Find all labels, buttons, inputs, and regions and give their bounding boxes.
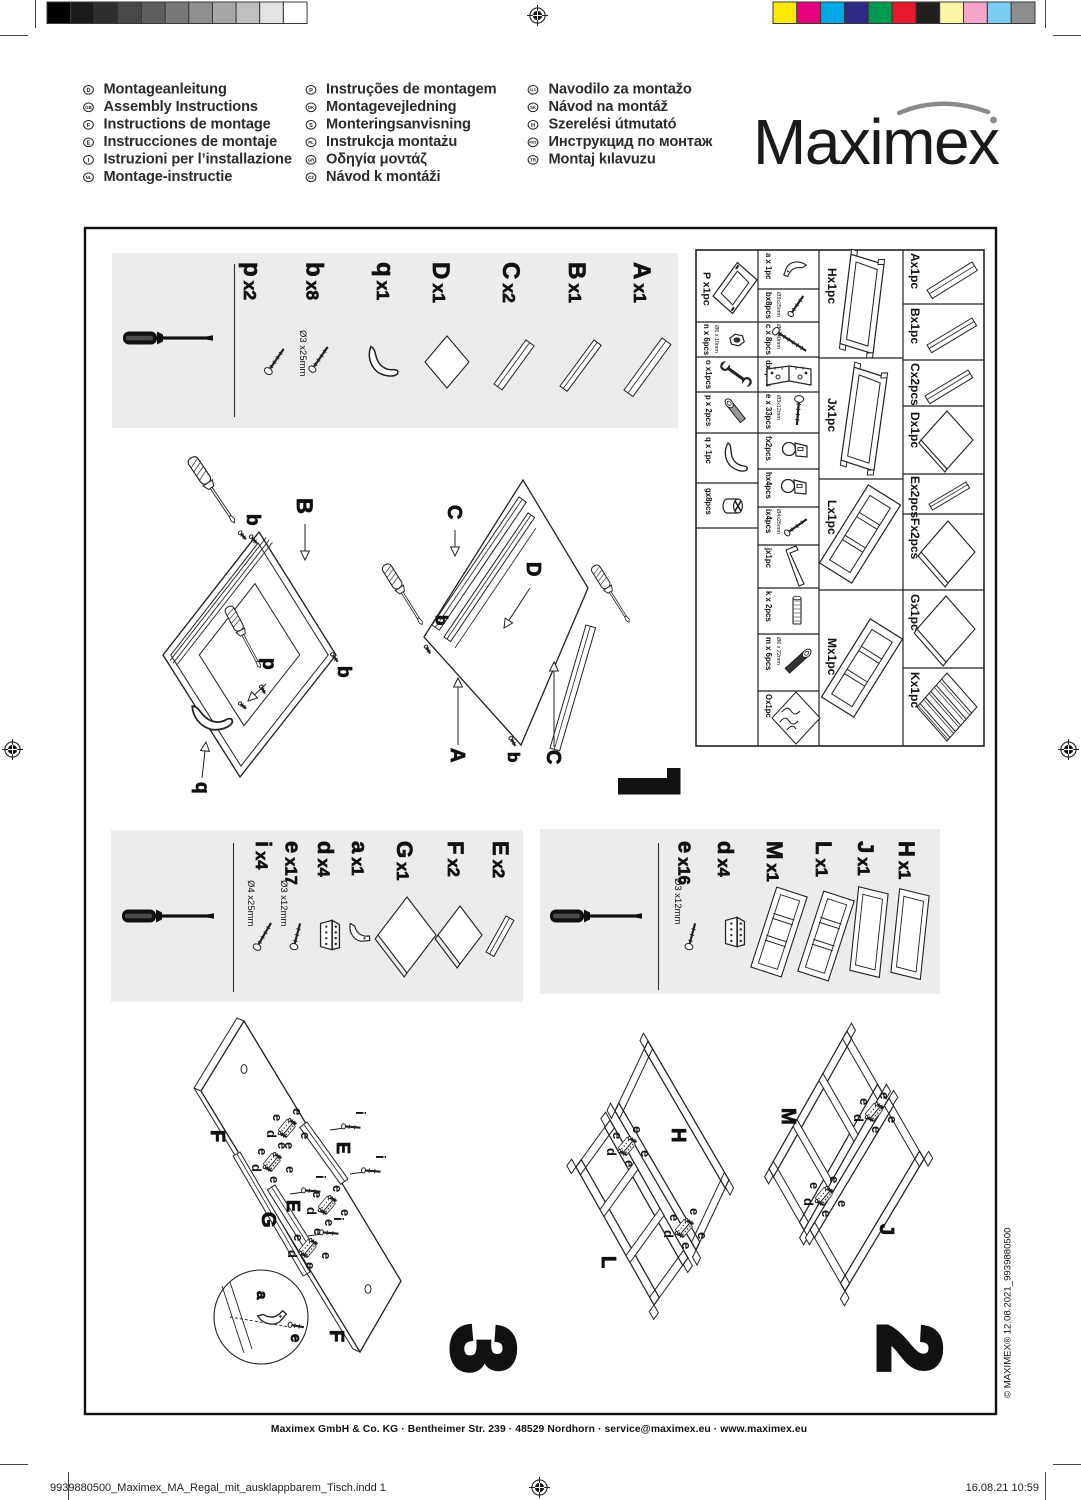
svg-text:Maximex: Maximex — [753, 106, 1000, 178]
svg-text:jx1pc: jx1pc — [764, 547, 773, 569]
svg-text:Bx1pc: Bx1pc — [908, 308, 922, 344]
svg-text:d: d — [304, 1207, 319, 1215]
svg-text:Ø3x12mm: Ø3x12mm — [775, 395, 781, 420]
svg-text:e: e — [687, 1208, 702, 1215]
svg-text:E: E — [87, 140, 91, 146]
svg-text:d: d — [604, 1148, 619, 1156]
svg-text:NL: NL — [86, 175, 92, 180]
svg-text:e: e — [287, 1334, 304, 1342]
svg-text:Ø4 x25mm: Ø4 x25mm — [245, 880, 256, 927]
svg-text:e x 33pcs: e x 33pcs — [764, 394, 773, 430]
svg-text:M: M — [777, 1108, 799, 1125]
svg-text:Ax1pc: Ax1pc — [908, 253, 922, 289]
svg-text:Ax1: Ax1 — [628, 262, 655, 303]
svg-text:Ø6 x 22mm: Ø6 x 22mm — [775, 637, 781, 665]
svg-text:b: b — [432, 615, 451, 625]
svg-text:DK: DK — [308, 105, 315, 110]
svg-text:m x 6pcs: m x 6pcs — [764, 637, 773, 671]
svg-text:e: e — [638, 1150, 653, 1157]
svg-text:Ø3 x25mm: Ø3 x25mm — [297, 330, 308, 377]
svg-text:k x 2pcs: k x 2pcs — [764, 591, 773, 622]
svg-text:C: C — [542, 750, 564, 764]
svg-text:Návod k montáži: Návod k montáži — [326, 169, 441, 185]
svg-text:E: E — [333, 1142, 353, 1154]
svg-text:D: D — [522, 562, 544, 576]
svg-text:e: e — [630, 1126, 645, 1133]
svg-text:e: e — [610, 1132, 625, 1139]
svg-text:F: F — [206, 1130, 228, 1142]
svg-text:Hx1pc: Hx1pc — [825, 268, 839, 304]
svg-text:Lx1pc: Lx1pc — [825, 500, 839, 535]
svg-text:Οδηγία μοντάζ: Οδηγία μοντάζ — [326, 152, 427, 168]
svg-text:ix4pcs: ix4pcs — [764, 509, 773, 534]
svg-text:e: e — [319, 1252, 334, 1259]
svg-text:SK: SK — [530, 105, 537, 110]
svg-text:B: B — [292, 498, 317, 514]
svg-text:Ø3 x12mm: Ø3 x12mm — [672, 878, 683, 925]
svg-text:e: e — [291, 1234, 306, 1241]
svg-text:Dx1: Dx1 — [427, 262, 454, 303]
svg-text:Istruzioni per l’installazione: Istruzioni per l’installazione — [104, 152, 292, 168]
svg-text:PL: PL — [308, 140, 314, 145]
svg-text:e: e — [622, 1160, 637, 1167]
svg-text:gx8pcs: gx8pcs — [704, 488, 713, 516]
svg-text:e: e — [330, 1185, 345, 1192]
svg-text:P x1pc: P x1pc — [701, 272, 713, 306]
svg-text:n x 6pcs: n x 6pcs — [702, 324, 711, 356]
svg-text:e: e — [303, 1262, 318, 1269]
svg-text:SLO: SLO — [530, 88, 537, 92]
svg-text:d: d — [264, 1130, 279, 1138]
svg-text:GR: GR — [308, 157, 315, 162]
svg-text:e: e — [298, 1132, 313, 1139]
svg-text:c x 8pcs: c x 8pcs — [764, 324, 773, 355]
svg-text:e: e — [290, 1108, 305, 1115]
svg-text:Cx2: Cx2 — [497, 262, 524, 303]
svg-text:Dx1pc: Dx1pc — [908, 412, 922, 448]
svg-text:d: d — [249, 1164, 264, 1172]
svg-text:Instructions de montage: Instructions de montage — [104, 117, 271, 133]
svg-text:Maximex GmbH & Co. KG · Benthe: Maximex GmbH & Co. KG · Bentheimer Str. … — [271, 1424, 807, 1435]
svg-text:GB: GB — [85, 105, 92, 110]
svg-text:Ø3 x12mm: Ø3 x12mm — [278, 880, 289, 927]
svg-text:e: e — [857, 1098, 872, 1105]
svg-text:d: d — [801, 1198, 816, 1206]
svg-text:Mx1pc: Mx1pc — [825, 638, 839, 676]
svg-text:A: A — [446, 748, 468, 762]
svg-text:e: e — [275, 1142, 290, 1149]
svg-text:2: 2 — [860, 1324, 959, 1373]
svg-text:e: e — [270, 1114, 285, 1121]
svg-text:C: C — [443, 505, 465, 519]
svg-text:d: d — [661, 1230, 676, 1238]
svg-text:Instruções de montagem: Instruções de montagem — [326, 82, 497, 98]
svg-text:CZ: CZ — [308, 175, 314, 180]
svg-text:Navodilo za montažo: Navodilo za montažo — [549, 82, 692, 98]
svg-text:d: d — [851, 1114, 866, 1122]
svg-text:b: b — [333, 666, 354, 678]
svg-text:Ø3x25mm: Ø3x25mm — [775, 292, 781, 317]
svg-text:d: d — [285, 1250, 300, 1258]
svg-text:Kx1pc: Kx1pc — [908, 672, 922, 708]
svg-text:Montage-instructie: Montage-instructie — [104, 169, 233, 185]
svg-text:fx2pcs: fx2pcs — [764, 436, 773, 461]
svg-text:P: P — [309, 88, 313, 94]
svg-text:a x 1pc: a x 1pc — [764, 253, 773, 280]
svg-text:Ex2pcs: Ex2pcs — [908, 476, 922, 518]
svg-text:H: H — [531, 123, 535, 129]
svg-text:e: e — [695, 1232, 710, 1239]
svg-text:Инструкцид по монтаж: Инструкцид по монтаж — [549, 134, 713, 150]
svg-text:Szerelési útmutató: Szerelési útmutató — [549, 117, 677, 133]
svg-text:Montageanleitung: Montageanleitung — [104, 82, 227, 98]
svg-text:Monteringsanvisning: Monteringsanvisning — [326, 117, 471, 133]
svg-text:9939880500_Maximex_MA_Regal_mi: 9939880500_Maximex_MA_Regal_mit_ausklapp… — [50, 1482, 386, 1494]
svg-text:e: e — [819, 1210, 834, 1217]
svg-text:e: e — [667, 1214, 682, 1221]
svg-text:e: e — [267, 1176, 282, 1183]
svg-text:E: E — [283, 1200, 303, 1212]
svg-text:G: G — [257, 1212, 279, 1228]
svg-text:Montagevejledning: Montagevejledning — [326, 99, 456, 115]
svg-text:p x 2pcs: p x 2pcs — [704, 395, 713, 427]
svg-text:RUS: RUS — [529, 141, 537, 145]
svg-text:Ø4x25mm: Ø4x25mm — [775, 509, 781, 534]
svg-text:e: e — [283, 1166, 298, 1173]
svg-text:Návod na montáž: Návod na montáž — [549, 99, 668, 115]
svg-text:qx1: qx1 — [371, 262, 398, 300]
svg-text:Ox1pc: Ox1pc — [764, 694, 773, 718]
svg-text:i: i — [353, 1111, 369, 1115]
svg-text:e: e — [869, 1126, 884, 1133]
svg-text:Instrucciones de montaje: Instrucciones de montaje — [104, 134, 278, 150]
svg-text:L: L — [597, 1256, 619, 1268]
svg-text:e: e — [827, 1176, 842, 1183]
svg-text:i: i — [373, 1155, 389, 1159]
svg-text:a: a — [253, 1291, 270, 1300]
svg-text:Instrukcja montażu: Instrukcja montażu — [326, 134, 457, 150]
svg-text:S: S — [309, 123, 313, 129]
svg-text:e: e — [338, 1209, 353, 1216]
svg-text:F: F — [87, 123, 91, 129]
svg-text:i: i — [331, 1217, 347, 1221]
svg-text:o x1pcs: o x1pcs — [704, 360, 713, 390]
svg-text:Assembly Instructions: Assembly Instructions — [104, 99, 258, 115]
svg-text:hx4pcs: hx4pcs — [764, 472, 773, 500]
svg-text:b: b — [242, 514, 263, 526]
svg-text:TR: TR — [530, 157, 537, 162]
svg-text:© MAXIMEX® 12.08.2021_9939880: © MAXIMEX® 12.08.2021_9939880500 — [1003, 1228, 1014, 1398]
svg-text:p: p — [258, 658, 279, 670]
svg-text:Ø6 x 10mm: Ø6 x 10mm — [713, 325, 719, 353]
svg-text:J: J — [875, 1224, 897, 1235]
svg-text:b: b — [504, 752, 523, 762]
svg-text:q x 1pc: q x 1pc — [704, 437, 713, 465]
svg-text:e: e — [255, 1148, 270, 1155]
svg-text:e: e — [877, 1092, 892, 1099]
svg-text:Cx2pcs: Cx2pcs — [908, 363, 922, 406]
svg-text:px2: px2 — [238, 262, 265, 300]
svg-text:Bx1: Bx1 — [563, 262, 590, 303]
svg-text:F: F — [325, 1330, 347, 1342]
svg-text:e: e — [885, 1116, 900, 1123]
svg-text:bx8: bx8 — [301, 262, 328, 300]
svg-text:Montaj kılavuzu: Montaj kılavuzu — [549, 152, 656, 168]
svg-text:H: H — [667, 1128, 689, 1142]
svg-text:bx8pcs: bx8pcs — [764, 292, 773, 320]
svg-text:16.08.21 10:59: 16.08.21 10:59 — [966, 1482, 1039, 1494]
svg-text:e: e — [807, 1182, 822, 1189]
svg-text:Jx1pc: Jx1pc — [825, 398, 839, 432]
svg-text:D: D — [86, 88, 90, 94]
svg-text:e: e — [835, 1200, 850, 1207]
svg-text:q: q — [191, 782, 212, 794]
svg-text:3: 3 — [434, 1325, 533, 1374]
svg-text:i: i — [313, 1175, 329, 1179]
svg-text:e: e — [679, 1242, 694, 1249]
